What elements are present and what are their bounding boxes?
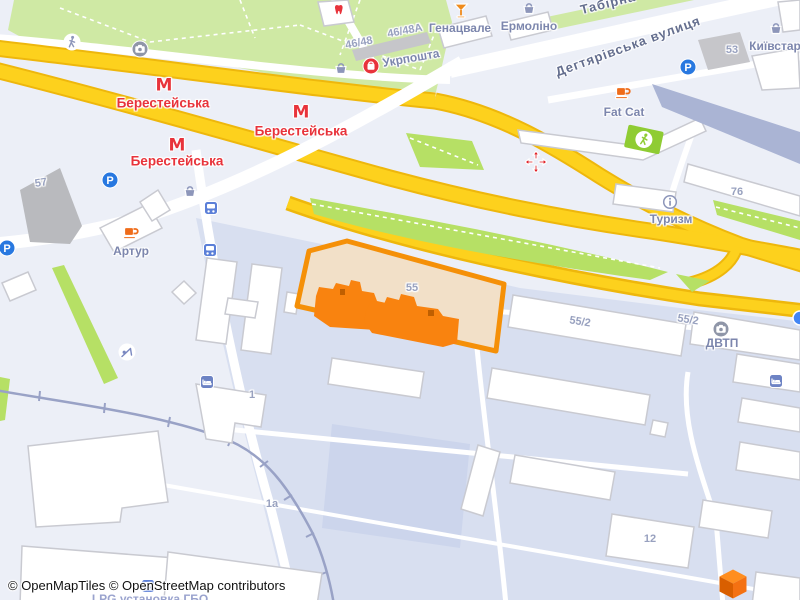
- crossing-arrows-icon[interactable]: [525, 151, 547, 173]
- svg-text:P: P: [3, 243, 10, 255]
- bus-stop-icon-1[interactable]: [204, 201, 218, 215]
- cafe-icon-fat-cat[interactable]: [615, 86, 632, 101]
- cafe-icon-artur[interactable]: [123, 226, 140, 241]
- photo-camera-icon-1[interactable]: [132, 41, 149, 58]
- metro-icon-2[interactable]: М: [293, 105, 310, 122]
- post-office-icon[interactable]: [363, 58, 380, 75]
- shop-basket-icon-4[interactable]: [768, 21, 784, 36]
- parking-icon-2[interactable]: P: [0, 240, 16, 257]
- metro-icon-3[interactable]: М: [169, 138, 186, 155]
- pedestrian-icon[interactable]: [63, 33, 81, 51]
- photo-camera-icon-2[interactable]: [713, 321, 730, 338]
- metro-icon-1[interactable]: М: [156, 78, 173, 95]
- svg-text:P: P: [106, 175, 113, 187]
- bus-stop-icon-2[interactable]: [203, 243, 217, 257]
- crossing-sign-icon[interactable]: [624, 124, 664, 154]
- parking-icon-3[interactable]: P: [680, 59, 697, 76]
- hotel-bed-icon-1[interactable]: [200, 375, 214, 389]
- parking-icon-1[interactable]: P: [102, 172, 119, 189]
- shop-basket-icon-2[interactable]: [333, 61, 349, 76]
- map-canvas[interactable]: ГенацвалеЕрмоліноУкрпоштаFat CatТуризмАр…: [0, 0, 800, 600]
- map-base-layer: [0, 0, 800, 600]
- hotel-bed-icon-2[interactable]: [769, 374, 783, 388]
- poi-dot-icon[interactable]: [792, 310, 800, 326]
- playground-icon[interactable]: [118, 343, 136, 361]
- dentist-tooth-icon[interactable]: [333, 3, 348, 18]
- shop-basket-icon-1[interactable]: [521, 1, 537, 16]
- openmaptiles-cube-logo[interactable]: [720, 570, 747, 599]
- bar-cocktail-icon[interactable]: [454, 3, 469, 19]
- svg-text:P: P: [684, 62, 691, 74]
- info-icon[interactable]: [663, 195, 678, 210]
- bus-stop-icon-3[interactable]: [141, 579, 155, 593]
- shop-basket-icon-3[interactable]: [182, 184, 198, 199]
